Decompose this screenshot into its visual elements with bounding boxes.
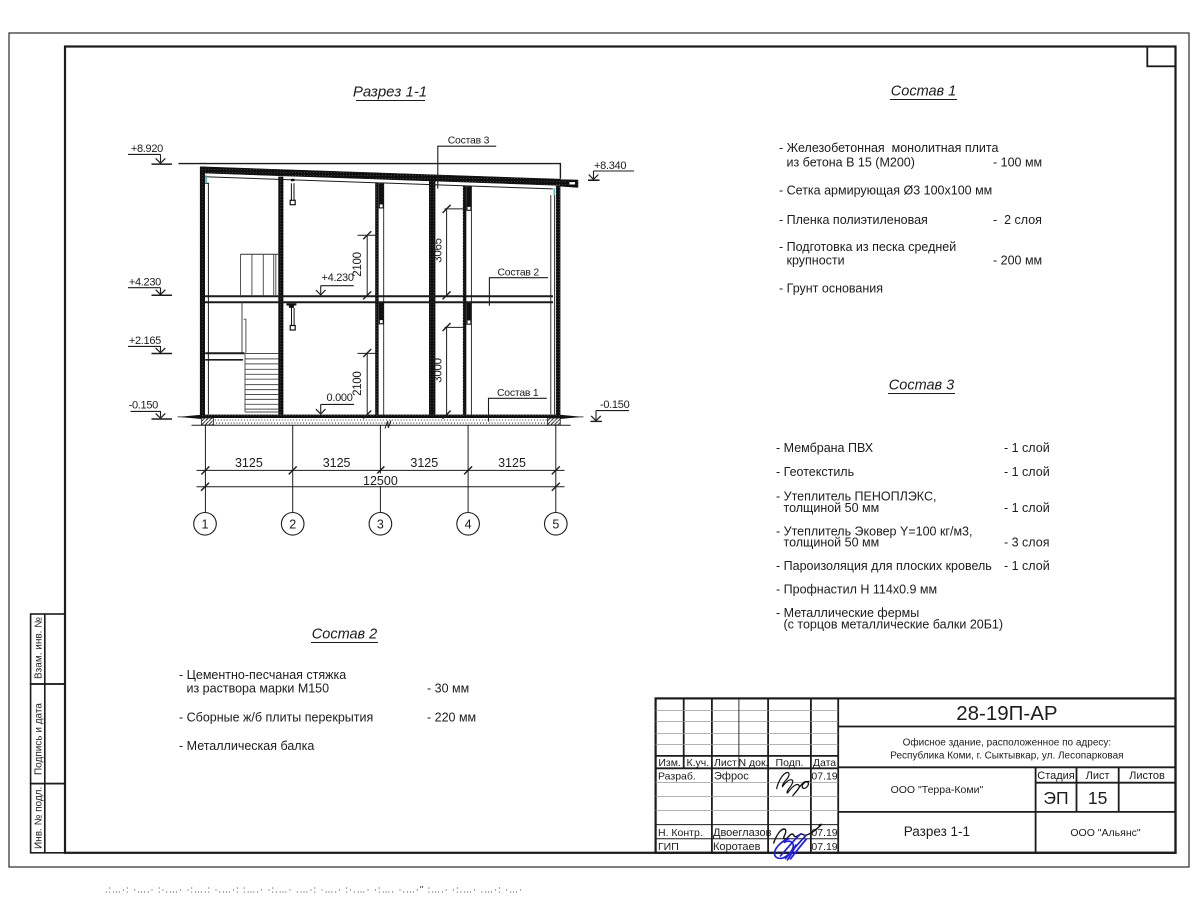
svg-text:0.000: 0.000	[327, 392, 353, 404]
svg-text:Состав 2: Состав 2	[498, 268, 540, 279]
svg-text:2: 2	[289, 517, 296, 531]
svg-text:+4.230: +4.230	[322, 272, 354, 284]
svg-text:+4.230: +4.230	[129, 276, 161, 288]
svg-text:28-19П-АР: 28-19П-АР	[956, 702, 1057, 725]
svg-text:Разраб.: Разраб.	[658, 771, 696, 783]
svg-text:Двоеглазов: Двоеглазов	[713, 827, 772, 839]
svg-text:Состав 3: Состав 3	[448, 135, 490, 146]
svg-text:- Сборные ж/б плиты перекрытия: - Сборные ж/б плиты перекрытия	[179, 710, 373, 724]
svg-text:.:…·: ·….· :·.…· ·:….: ·.…·: :: .:…·: ·….· :·.…· ·:….: ·.…·: :….· ·:.…· …	[105, 885, 523, 895]
svg-text:- 1 слой: - 1 слой	[1004, 559, 1050, 573]
svg-text:Лист: Лист	[714, 757, 737, 769]
svg-text:- 2 слоя: - 2 слоя	[993, 213, 1042, 227]
svg-text:ГИП: ГИП	[658, 841, 679, 853]
svg-text:3125: 3125	[410, 456, 438, 470]
svg-text:ООО "Альянс": ООО "Альянс"	[1070, 827, 1140, 839]
svg-text:- Грунт основания: - Грунт основания	[779, 282, 883, 296]
svg-text:3125: 3125	[235, 456, 263, 470]
svg-text:- 100 мм: - 100 мм	[993, 156, 1042, 170]
svg-text:Разрез 1-1: Разрез 1-1	[904, 824, 970, 839]
svg-text:- Металлическая балка: - Металлическая балка	[179, 739, 314, 753]
svg-text:Республика Коми, г. Сыктывкар,: Республика Коми, г. Сыктывкар, ул. Лесоп…	[890, 750, 1123, 762]
svg-text:- 30 мм: - 30 мм	[427, 682, 469, 696]
svg-text:- Подготовка из песка средней: - Подготовка из песка средней	[779, 240, 956, 254]
svg-text:- Геотекстиль: - Геотекстиль	[776, 465, 854, 479]
svg-text:крупности: крупности	[787, 254, 845, 268]
svg-text:+8.340: +8.340	[594, 160, 626, 172]
svg-text:Состав 3: Состав 3	[889, 378, 954, 394]
svg-text:- 3 слоя: - 3 слоя	[1004, 536, 1049, 550]
svg-text:5: 5	[552, 517, 559, 531]
svg-text:+2.165: +2.165	[129, 335, 161, 347]
svg-text:Коротаев: Коротаев	[713, 841, 761, 853]
svg-text:- Мембрана ПВХ: - Мембрана ПВХ	[776, 441, 874, 455]
svg-text:толщиной 50 мм: толщиной 50 мм	[784, 501, 880, 515]
svg-text:- Пароизоляция для плоских кро: - Пароизоляция для плоских кровель	[776, 559, 992, 573]
svg-text:07.19: 07.19	[811, 771, 837, 783]
svg-text:Эфрос: Эфрос	[714, 771, 749, 783]
svg-text:- Профнастил Н 114х0.9 мм: - Профнастил Н 114х0.9 мм	[776, 583, 937, 597]
svg-text:07.19: 07.19	[811, 841, 837, 853]
svg-text:- Железобетонная монолитная п: - Железобетонная монолитная плита	[779, 141, 998, 155]
svg-text:-0.150: -0.150	[600, 399, 630, 411]
svg-text:3: 3	[377, 517, 384, 531]
svg-text:12500: 12500	[363, 474, 398, 488]
svg-text:3000: 3000	[433, 358, 445, 382]
svg-text:2100: 2100	[352, 372, 364, 396]
svg-text:(с торцов металлические балки: (с торцов металлические балки 20Б1)	[784, 618, 1004, 632]
svg-text:Офисное здание, расположенное: Офисное здание, расположенное по адресу:	[903, 737, 1112, 749]
svg-text:3065: 3065	[433, 238, 445, 262]
svg-text:из бетона В 15 (М200): из бетона В 15 (М200)	[787, 156, 915, 170]
svg-text:из раствора марки М150: из раствора марки М150	[187, 682, 330, 696]
svg-text:3125: 3125	[498, 456, 526, 470]
svg-text:Подпись и дата: Подпись и дата	[34, 703, 45, 775]
svg-text:15: 15	[1088, 788, 1107, 808]
svg-text:07.19: 07.19	[811, 827, 837, 839]
svg-text:Изм.: Изм.	[658, 757, 681, 769]
svg-text:- 1 слой: - 1 слой	[1004, 501, 1050, 515]
svg-text:- Сетка армирующая Ø3 100х100: - Сетка армирующая Ø3 100х100 мм	[779, 184, 992, 198]
svg-text:1: 1	[202, 517, 209, 531]
svg-text:2100: 2100	[352, 252, 364, 276]
svg-text:- 200 мм: - 200 мм	[993, 254, 1042, 268]
svg-text:Состав 1: Состав 1	[497, 388, 539, 399]
svg-text:4: 4	[465, 517, 472, 531]
svg-text:Дата: Дата	[813, 757, 836, 769]
svg-text:- 1 слой: - 1 слой	[1004, 441, 1050, 455]
svg-text:- Пленка полиэтиленовая: - Пленка полиэтиленовая	[779, 213, 928, 227]
svg-text:толщиной 50 мм: толщиной 50 мм	[784, 536, 880, 550]
svg-text:К.уч.: К.уч.	[686, 757, 709, 769]
svg-text:Листов: Листов	[1129, 770, 1165, 782]
svg-text:- 1 слой: - 1 слой	[1004, 465, 1050, 479]
svg-text:- Цементно-песчаная стяжка: - Цементно-песчаная стяжка	[179, 668, 346, 682]
svg-text:ЭП: ЭП	[1043, 788, 1068, 808]
svg-text:ООО "Терра-Коми": ООО "Терра-Коми"	[891, 784, 984, 796]
svg-text:Подп.: Подп.	[776, 757, 804, 769]
svg-text:N док.: N док.	[739, 757, 769, 769]
svg-text:Стадия: Стадия	[1037, 770, 1075, 782]
svg-text:-0.150: -0.150	[129, 400, 159, 412]
svg-text:3125: 3125	[323, 456, 351, 470]
svg-text:- 220 мм: - 220 мм	[427, 710, 476, 724]
svg-text:Взам. инв. №: Взам. инв. №	[34, 617, 45, 679]
svg-text:Инв. № подл.: Инв. № подл.	[34, 787, 45, 849]
svg-text:Состав 1: Состав 1	[891, 84, 956, 100]
svg-text:Разрез 1-1: Разрез 1-1	[353, 84, 427, 101]
svg-text:Лист: Лист	[1086, 770, 1110, 782]
svg-text:+8.920: +8.920	[131, 143, 163, 155]
svg-text:Н. Контр.: Н. Контр.	[658, 827, 703, 839]
svg-text:Состав 2: Состав 2	[312, 627, 377, 643]
